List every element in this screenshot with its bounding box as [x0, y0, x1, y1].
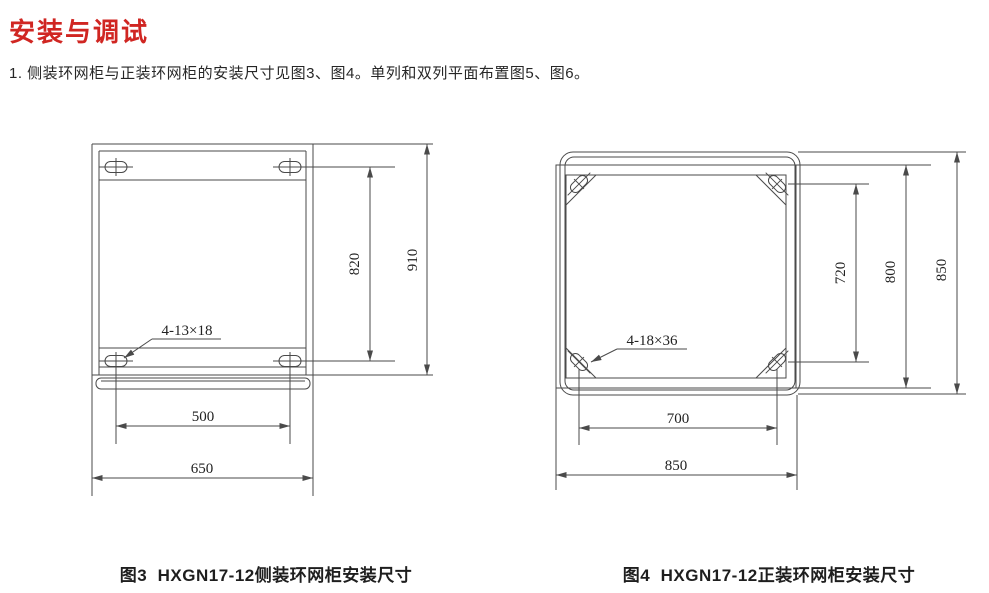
dim-label-720: 720: [833, 262, 849, 285]
fig3-dimensions: 820 910 500 650 4-13×18: [92, 144, 427, 478]
fig4-slot-spec-label: 4-18×36: [627, 333, 678, 349]
dim-label-650: 650: [191, 461, 214, 477]
fig4-mounting-slots: [563, 168, 794, 379]
dim-label-820: 820: [347, 253, 363, 276]
dim-label-850-horizontal: 850: [665, 458, 688, 474]
dim-label-850-vertical: 850: [934, 259, 950, 282]
fig3-cabinet-outline: [92, 144, 433, 496]
fig4-dimensions: 720 800 850 700 850 4-18×36: [556, 152, 966, 490]
figure3-caption: 图3 HXGN17-12侧装环网柜安装尺寸: [112, 561, 420, 583]
dim-label-500: 500: [192, 409, 215, 425]
dim-label-910: 910: [405, 249, 421, 272]
installation-drawings: 820 910 500 650 4-13×18: [0, 0, 989, 593]
fig3-slot-spec-label: 4-13×18: [162, 323, 213, 339]
figure3-drawing: 820 910 500 650 4-13×18: [92, 144, 433, 496]
fig4-cabinet-outline: [556, 152, 800, 395]
mounting-slot: [563, 168, 596, 201]
dim-label-800: 800: [883, 261, 899, 284]
mounting-slot: [273, 158, 307, 176]
figure4-caption: 图4 HXGN17-12正装环网柜安装尺寸: [613, 561, 925, 583]
mounting-slot: [99, 158, 133, 176]
figure4-drawing: 720 800 850 700 850 4-18×36: [556, 152, 966, 490]
dim-label-700: 700: [667, 411, 690, 427]
